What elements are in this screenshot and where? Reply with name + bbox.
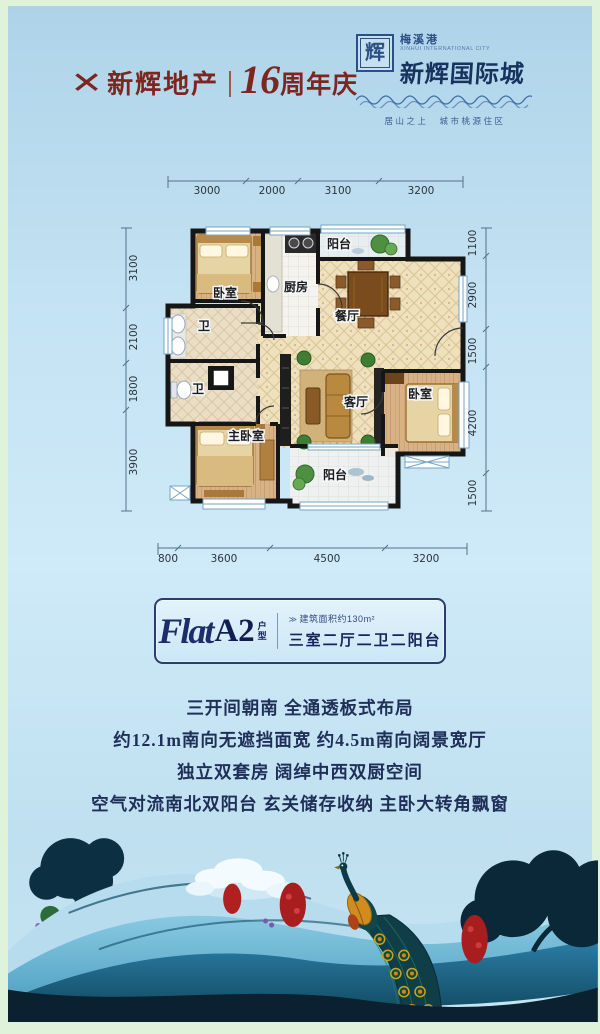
anniversary-number: 16 xyxy=(240,57,280,102)
wave-peacock-artwork xyxy=(8,820,598,1022)
poster-background: ✕新辉地产16周年庆 辉 梅溪港 XINHUI INTERNATIONAL CI… xyxy=(8,6,592,1022)
unit-code: A2 xyxy=(214,613,254,650)
layout-note: 三室二厅二卫二阳台 xyxy=(289,629,442,650)
area-note: 建筑面积约130m² xyxy=(300,614,376,624)
anniversary-suffix: 周年庆 xyxy=(280,71,358,99)
feature-line-2: 约12.1m南向无遮挡面宽 约4.5m南向阔景宽厅 xyxy=(8,724,592,756)
label-bath-upper: 卫 xyxy=(198,319,210,333)
dim-bottom-1: 800 xyxy=(158,553,178,565)
label-bedroom-right: 卧室 xyxy=(408,386,432,401)
project-logo: 辉 梅溪港 XINHUI INTERNATIONAL CITY 新辉国际城 居山… xyxy=(356,34,534,127)
unit-type-label: 户型 xyxy=(257,621,266,641)
dim-left-4: 3900 xyxy=(128,449,140,476)
wave-pattern-icon xyxy=(356,92,532,108)
dim-right-3: 1500 xyxy=(467,338,479,365)
seal-icon: 辉 xyxy=(356,34,394,72)
logo-subbrand: 梅溪港 xyxy=(400,34,525,46)
dim-right-1: 1100 xyxy=(467,230,479,257)
chevron-icon: ≫ xyxy=(289,615,298,624)
floor-plan-drawing: 卧室 厨房 阳台 餐厅 卫 卫 主卧室 客厅 卧室 阳台 xyxy=(8,156,600,586)
feature-line-1: 三开间朝南 全通透板式布局 xyxy=(8,692,592,724)
label-dining: 餐厅 xyxy=(335,308,359,323)
label-kitchen: 厨房 xyxy=(284,279,308,294)
label-bedroom-top: 卧室 xyxy=(213,285,237,300)
label-balcony-bottom: 阳台 xyxy=(323,467,347,482)
dim-right-5: 1500 xyxy=(467,480,479,507)
brand-name: 新辉地产 xyxy=(107,69,219,99)
dim-left-2: 2100 xyxy=(128,324,140,351)
brand-lockup: ✕新辉地产16周年庆 xyxy=(74,56,358,103)
logo-tagline: 居山之上 城市桃源住区 xyxy=(356,115,534,127)
unit-type-card: Flat A2 户型 ≫建筑面积约130m² 三室二厅二卫二阳台 xyxy=(154,598,446,664)
dim-bottom-2: 3600 xyxy=(211,553,238,565)
label-master-bedroom: 主卧室 xyxy=(228,428,264,443)
brand-divider xyxy=(229,71,231,97)
brand-x-icon: ✕ xyxy=(70,66,103,101)
feature-line-4: 空气对流南北双阳台 玄关储存收纳 主卧大转角飘窗 xyxy=(8,788,592,820)
logo-subbrand-en: XINHUI INTERNATIONAL CITY xyxy=(400,46,525,53)
dim-right-4: 4200 xyxy=(467,410,479,437)
dim-left-3: 1800 xyxy=(128,376,140,403)
dim-top-1: 3000 xyxy=(194,185,221,197)
dim-bottom-4: 3200 xyxy=(413,553,440,565)
label-balcony-top: 阳台 xyxy=(327,236,351,251)
dim-top-2: 2000 xyxy=(259,185,286,197)
feature-line-3: 独立双套房 阔绰中西双厨空间 xyxy=(8,756,592,788)
seal-character: 辉 xyxy=(365,43,385,63)
dim-right-2: 2900 xyxy=(467,282,479,309)
feature-list: 三开间朝南 全通透板式布局 约12.1m南向无遮挡面宽 约4.5m南向阔景宽厅 … xyxy=(8,692,592,820)
poster-frame: ✕新辉地产16周年庆 辉 梅溪港 XINHUI INTERNATIONAL CI… xyxy=(0,0,600,1034)
dim-top-3: 3100 xyxy=(325,185,352,197)
label-living: 客厅 xyxy=(343,394,368,409)
flat-script-text: Flat xyxy=(158,610,212,652)
label-bath-lower: 卫 xyxy=(192,382,204,396)
dim-bottom-3: 4500 xyxy=(314,553,341,565)
dim-left-1: 3100 xyxy=(128,255,140,282)
card-divider xyxy=(277,613,278,649)
dim-top-4: 3200 xyxy=(408,185,435,197)
logo-project-name: 新辉国际城 xyxy=(399,54,526,89)
floor-plan: 卧室 厨房 阳台 餐厅 卫 卫 主卧室 客厅 卧室 阳台 xyxy=(8,156,600,586)
